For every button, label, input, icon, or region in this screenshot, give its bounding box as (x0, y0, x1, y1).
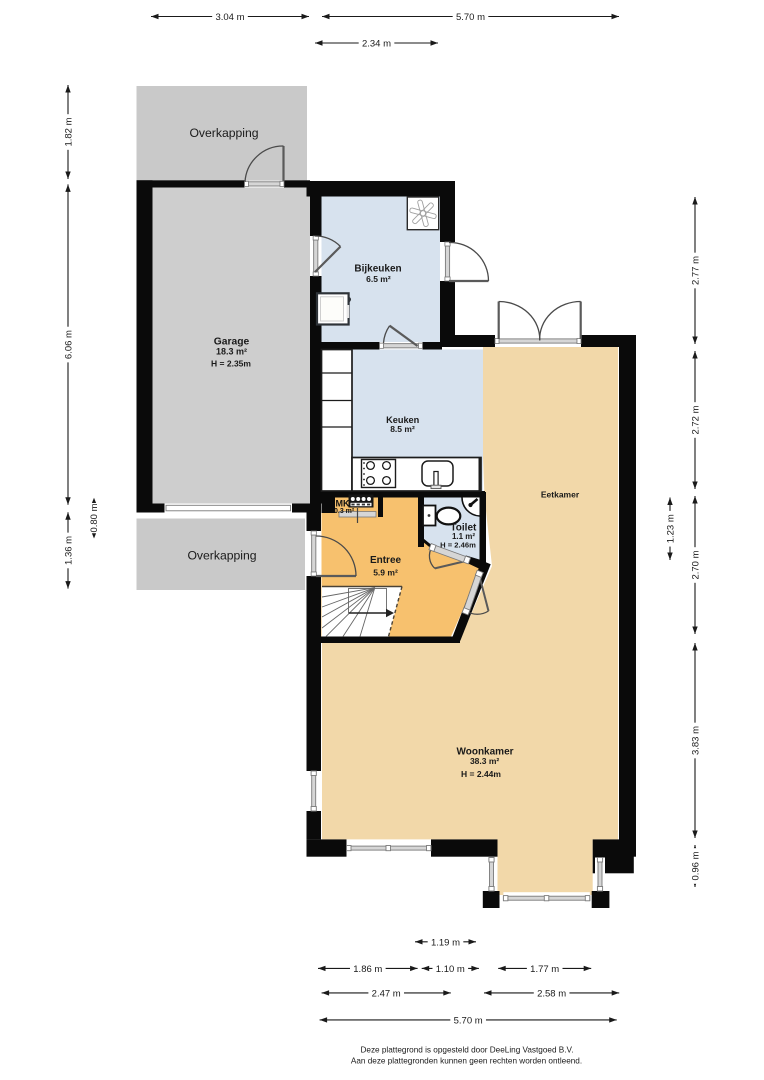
svg-text:0.3 m²: 0.3 m² (334, 508, 355, 515)
svg-text:Aan deze plattegronden kunnen: Aan deze plattegronden kunnen geen recht… (351, 1056, 582, 1065)
svg-text:1.77 m: 1.77 m (530, 964, 559, 975)
svg-text:H = 2.35m: H = 2.35m (211, 359, 251, 369)
svg-text:Eetkamer: Eetkamer (541, 489, 580, 499)
svg-text:0.80 m: 0.80 m (89, 503, 100, 532)
svg-text:1.10 m: 1.10 m (436, 964, 465, 975)
svg-text:2.58 m: 2.58 m (537, 988, 566, 999)
svg-text:Entree: Entree (370, 555, 402, 566)
svg-text:2.72 m: 2.72 m (691, 405, 702, 434)
svg-text:1.19 m: 1.19 m (431, 937, 460, 948)
svg-text:2.34 m: 2.34 m (362, 39, 391, 50)
svg-text:1.86 m: 1.86 m (353, 964, 382, 975)
svg-text:1.23 m: 1.23 m (666, 514, 677, 543)
svg-text:Overkapping: Overkapping (187, 549, 256, 563)
svg-text:H = 2.44m: H = 2.44m (461, 769, 501, 779)
svg-text:5.9 m²: 5.9 m² (373, 567, 398, 577)
svg-text:8.5 m²: 8.5 m² (390, 424, 415, 434)
svg-text:1.82 m: 1.82 m (64, 117, 75, 146)
svg-text:6.06 m: 6.06 m (64, 330, 75, 359)
svg-text:6.5 m²: 6.5 m² (366, 274, 391, 284)
svg-text:MK: MK (336, 499, 350, 509)
svg-text:Overkapping: Overkapping (189, 126, 258, 140)
svg-text:38.3 m²: 38.3 m² (470, 756, 499, 766)
svg-text:0.96 m: 0.96 m (691, 851, 702, 880)
svg-text:Deze plattegrond is opgesteld: Deze plattegrond is opgesteld door DeeLi… (360, 1045, 573, 1054)
svg-text:5.70 m: 5.70 m (454, 1015, 483, 1026)
svg-text:2.47 m: 2.47 m (372, 988, 401, 999)
svg-text:H = 2.46m: H = 2.46m (440, 541, 476, 550)
svg-text:1.36 m: 1.36 m (64, 536, 75, 565)
svg-text:2.77 m: 2.77 m (691, 256, 702, 285)
svg-text:3.04 m: 3.04 m (215, 12, 244, 23)
svg-text:3.83 m: 3.83 m (691, 726, 702, 755)
svg-text:2.70 m: 2.70 m (691, 550, 702, 579)
svg-text:18.3 m²: 18.3 m² (216, 347, 247, 357)
svg-text:5.70 m: 5.70 m (456, 12, 485, 23)
